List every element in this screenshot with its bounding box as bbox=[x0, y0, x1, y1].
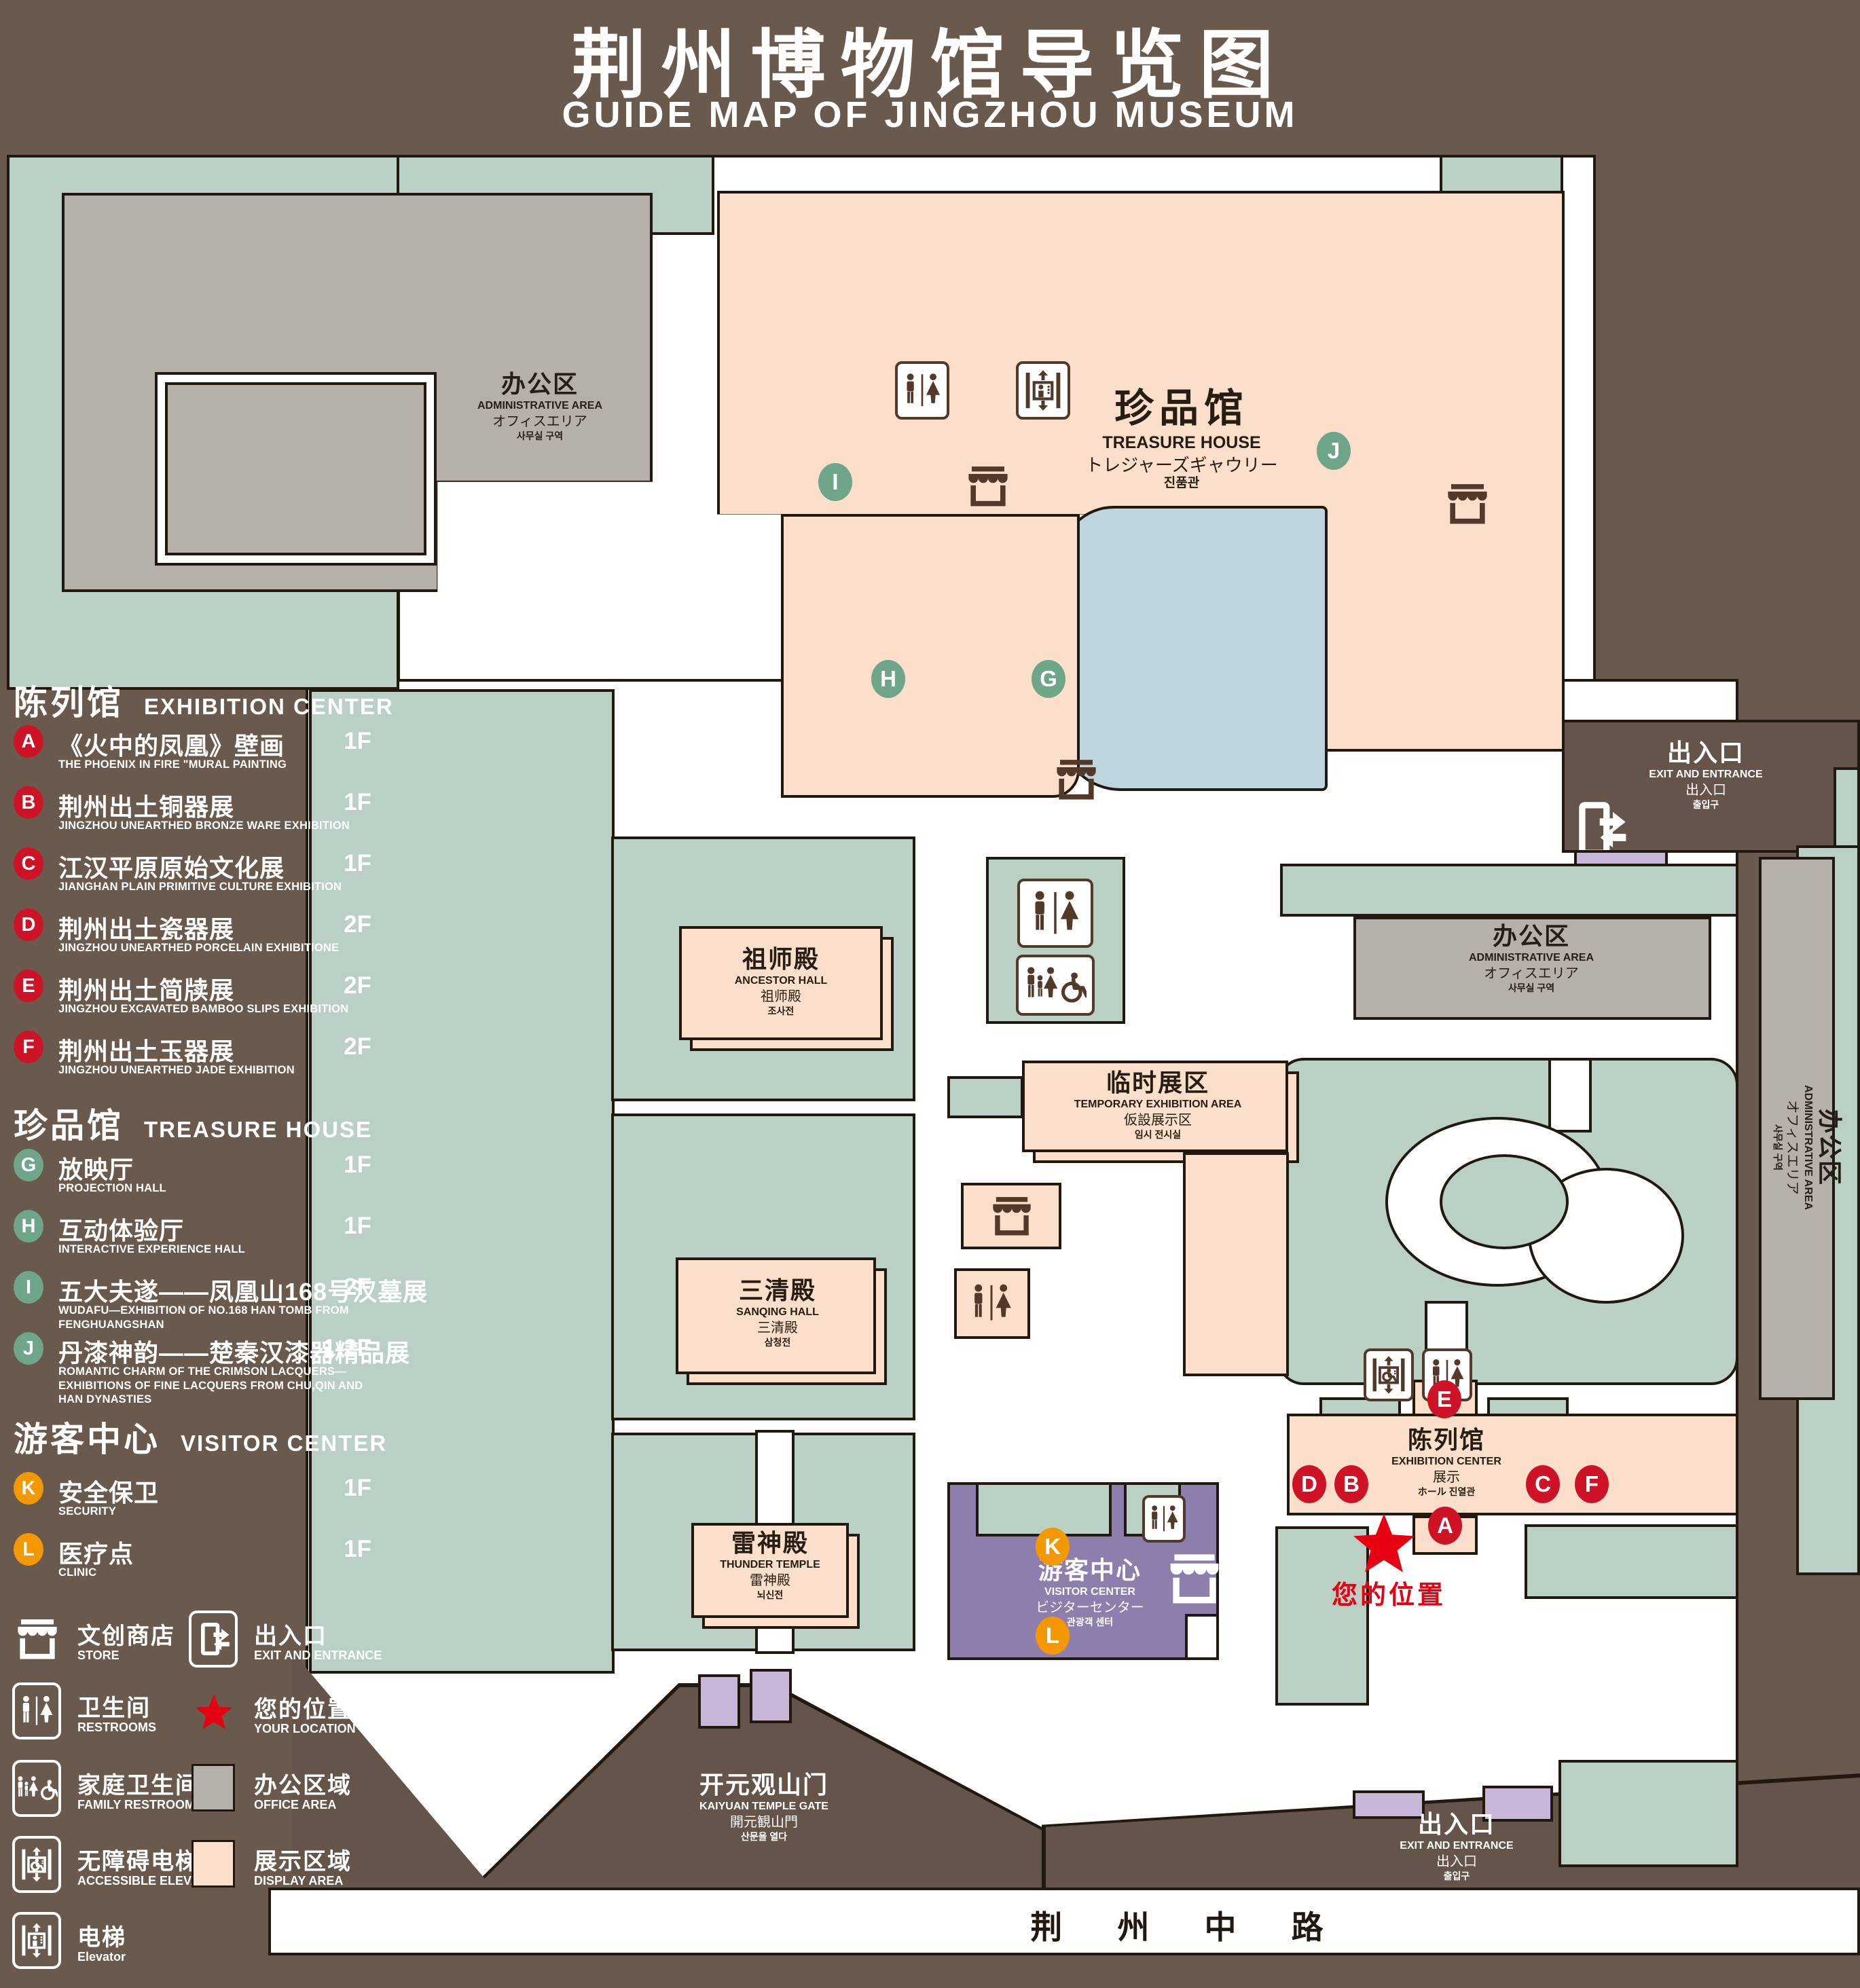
store-icon bbox=[966, 466, 1010, 507]
legend-item-subtitle: SECURITY bbox=[58, 1505, 384, 1519]
map-marker-B: B bbox=[1334, 1465, 1368, 1503]
family-restrooms-icon bbox=[12, 1760, 61, 1817]
legend-item-K: K安全保卫1FSECURITY bbox=[14, 1472, 371, 1532]
section-title-cn: 珍品馆 bbox=[14, 1107, 124, 1145]
marker-badge: G bbox=[14, 1149, 43, 1181]
green-strip-east bbox=[1834, 767, 1860, 848]
legend-item-D: D荆州出土瓷器展2FJINGZHOU UNEARTHED PORCELAIN E… bbox=[14, 908, 371, 968]
garden-loop-island bbox=[1440, 1154, 1569, 1249]
elevator-icon bbox=[12, 1912, 61, 1969]
legend-item-name: 医疗点 bbox=[58, 1534, 134, 1570]
map-marker-C: C bbox=[1526, 1465, 1560, 1503]
legend-item-subtitle: CLINIC bbox=[58, 1566, 384, 1580]
legend-symbol-office-swatch: 办公区域OFFICE AREA bbox=[189, 1760, 413, 1828]
store-icon bbox=[14, 1617, 61, 1661]
section-title-cn: 陈列馆 bbox=[14, 684, 124, 722]
legend-item-B: B荆州出土铜器展1FJINGZHOU UNEARTHED BRONZE WARE… bbox=[14, 786, 371, 846]
map-marker-D: D bbox=[1292, 1465, 1326, 1503]
legend-symbol-name: 无障碍电梯 bbox=[77, 1843, 200, 1876]
restrooms-icon bbox=[12, 1682, 61, 1739]
marker-badge: H bbox=[14, 1210, 43, 1242]
legend-symbol-subtitle: Elevator bbox=[77, 1950, 126, 1964]
store-icon bbox=[990, 1196, 1034, 1236]
legend-item-I: I五大夫遂——凤凰山168号汉墓展2FWUDAFU—EXHIBITION OF … bbox=[14, 1271, 371, 1331]
road-name-label: 荆 州 中 路 bbox=[951, 1901, 1426, 1948]
restrooms-icon bbox=[895, 361, 949, 420]
legend-item-floor: 1F bbox=[344, 1152, 371, 1179]
legend-item-subtitle: THE PHOENIX IN FIRE "MURAL PAINTING bbox=[58, 758, 384, 772]
map-marker-K: K bbox=[1036, 1528, 1070, 1566]
legend-panel: 陈列馆EXHIBITION CENTERA《火中的凤凰》壁画1FTHE PHOE… bbox=[0, 0, 516, 1988]
green-patch bbox=[947, 1076, 1023, 1118]
legend-item-floor: 1F bbox=[344, 728, 371, 755]
legend-item-A: A《火中的凤凰》壁画1FTHE PHOENIX IN FIRE "MURAL P… bbox=[14, 725, 371, 785]
restrooms-icon bbox=[970, 1282, 1013, 1324]
legend-item-E: E荆州出土简牍展2FJINGZHOU EXCAVATED BAMBOO SLIP… bbox=[14, 970, 371, 1029]
legend-item-subtitle: WUDAFU—EXHIBITION OF NO.168 HAN TOMB FRO… bbox=[58, 1304, 384, 1331]
legend-item-subtitle: INTERACTIVE EXPERIENCE HALL bbox=[58, 1242, 384, 1257]
legend-item-name: 互动体验厅 bbox=[58, 1211, 184, 1247]
legend-symbol-name: 办公区域 bbox=[254, 1767, 352, 1800]
accessible-elevator-icon bbox=[12, 1836, 61, 1893]
map-marker-H: H bbox=[871, 660, 905, 698]
map-marker-E: E bbox=[1427, 1380, 1461, 1418]
legend-item-name: 五大夫遂——凤凰山168号汉墓展 bbox=[58, 1272, 428, 1308]
legend-item-floor: 2F bbox=[344, 1274, 371, 1301]
legend-item-H: H互动体验厅1FINTERACTIVE EXPERIENCE HALL bbox=[14, 1210, 371, 1270]
marker-badge: A bbox=[14, 725, 43, 758]
legend-item-name: 江汉平原原始文化展 bbox=[58, 849, 285, 884]
legend-item-F: F荆州出土玉器展2FJINGZHOU UNEARTHED JADE EXHIBI… bbox=[14, 1031, 371, 1090]
marker-badge: K bbox=[14, 1472, 43, 1505]
temporary-exhibition-wing bbox=[1183, 1152, 1289, 1376]
map-marker-I: I bbox=[818, 463, 852, 501]
gate-building bbox=[1482, 1786, 1553, 1822]
legend-symbol-subtitle: OFFICE AREA bbox=[254, 1798, 336, 1812]
legend-symbol-location-icon: 您的位置YOUR LOCATION bbox=[189, 1684, 413, 1752]
pond bbox=[1059, 506, 1328, 791]
gate-building bbox=[698, 1674, 740, 1729]
sanqing-hall-building bbox=[676, 1257, 876, 1374]
admin-middle-building bbox=[1353, 917, 1711, 1020]
legend-section-header: 陈列馆EXHIBITION CENTER bbox=[14, 676, 394, 724]
legend-item-subtitle: JINGZHOU UNEARTHED JADE EXHIBITION bbox=[58, 1063, 384, 1078]
section-title-en: EXHIBITION CENTER bbox=[144, 694, 394, 719]
marker-badge: B bbox=[14, 786, 43, 819]
green-zone-south bbox=[1525, 1524, 1738, 1599]
map-marker-G: G bbox=[1032, 660, 1065, 698]
display-swatch bbox=[192, 1840, 235, 1888]
green-zone-southeast bbox=[1558, 1760, 1738, 1867]
marker-badge: J bbox=[14, 1332, 43, 1365]
marker-badge: C bbox=[14, 847, 43, 880]
legend-symbol-elevator-icon: 电梯Elevator bbox=[12, 1912, 236, 1980]
legend-symbol-subtitle: EXIT AND ENTRANCE bbox=[254, 1649, 382, 1663]
legend-item-subtitle: JINGZHOU EXCAVATED BAMBOO SLIPS EXHIBITI… bbox=[58, 1002, 384, 1016]
restrooms-icon bbox=[1017, 879, 1093, 948]
legend-item-subtitle: PROJECTION HALL bbox=[58, 1181, 384, 1196]
your-location-label: 您的位置 bbox=[1324, 1574, 1453, 1611]
legend-item-floor: 1-2F bbox=[323, 1335, 371, 1362]
section-title-cn: 游客中心 bbox=[14, 1420, 160, 1458]
ancestor-hall-building bbox=[679, 926, 883, 1040]
legend-symbol-name: 电梯 bbox=[77, 1919, 126, 1952]
elevator-icon bbox=[1016, 361, 1070, 420]
marker-badge: L bbox=[14, 1533, 43, 1566]
legend-item-J: J丹漆神韵——楚秦汉漆器精品展1-2FROMANTIC CHARM OF THE… bbox=[14, 1332, 371, 1392]
location-icon bbox=[190, 1691, 238, 1734]
legend-symbol-subtitle: STORE bbox=[77, 1649, 120, 1663]
legend-item-G: G放映厅1FPROJECTION HALL bbox=[14, 1149, 371, 1209]
legend-symbol-subtitle: RESTROOMS bbox=[77, 1720, 156, 1735]
marker-badge: F bbox=[14, 1031, 43, 1063]
legend-item-floor: 1F bbox=[344, 789, 371, 816]
legend-section-header: 游客中心VISITOR CENTER bbox=[14, 1412, 387, 1461]
gate-building bbox=[750, 1669, 792, 1723]
admin-east-building bbox=[1759, 857, 1835, 1400]
map-marker-F: F bbox=[1575, 1465, 1609, 1503]
legend-symbol-name: 展示区域 bbox=[254, 1843, 352, 1876]
legend-item-subtitle: JIANGHAN PLAIN PRIMITIVE CULTURE EXHIBIT… bbox=[58, 880, 384, 894]
family-restrooms-icon bbox=[1016, 955, 1095, 1016]
temporary-exhibition-building bbox=[1022, 1061, 1288, 1152]
legend-item-name: 荆州出土铜器展 bbox=[58, 788, 234, 823]
gate-building bbox=[1353, 1790, 1425, 1819]
legend-symbol-name: 家庭卫生间 bbox=[77, 1767, 200, 1800]
legend-item-floor: 1F bbox=[344, 850, 371, 877]
legend-item-C: C江汉平原原始文化展1FJIANGHAN PLAIN PRIMITIVE CUL… bbox=[14, 847, 371, 907]
legend-symbol-name: 您的位置 bbox=[254, 1691, 352, 1724]
section-title-en: VISITOR CENTER bbox=[181, 1431, 387, 1456]
legend-item-floor: 1F bbox=[344, 1213, 371, 1240]
legend-item-floor: 2F bbox=[344, 911, 371, 938]
legend-symbol-subtitle: YOUR LOCATION bbox=[254, 1722, 356, 1736]
legend-section-header: 珍品馆TREASURE HOUSE bbox=[14, 1099, 372, 1147]
legend-symbol-name: 卫生间 bbox=[77, 1689, 151, 1723]
store-icon bbox=[1445, 483, 1490, 524]
legend-item-L: L医疗点1FCLINIC bbox=[14, 1533, 371, 1593]
map-marker-J: J bbox=[1317, 432, 1351, 470]
exit-icon bbox=[189, 1610, 238, 1668]
map-marker-L: L bbox=[1036, 1617, 1070, 1655]
legend-item-name: 荆州出土简牍展 bbox=[58, 971, 234, 1006]
marker-badge: D bbox=[14, 908, 43, 941]
legend-symbol-subtitle: FAMILY RESTROOMS bbox=[77, 1798, 203, 1812]
legend-item-floor: 1F bbox=[344, 1475, 371, 1502]
legend-item-floor: 2F bbox=[344, 1033, 371, 1061]
map-marker-A: A bbox=[1428, 1507, 1462, 1545]
legend-item-floor: 2F bbox=[344, 972, 371, 999]
legend-item-subtitle: JINGZHOU UNEARTHED PORCELAIN EXHIBITIONE bbox=[58, 941, 384, 955]
restrooms-icon bbox=[1142, 1495, 1186, 1543]
store-icon bbox=[1167, 1553, 1222, 1604]
store-icon bbox=[1054, 759, 1099, 800]
thunder-temple-building bbox=[691, 1523, 849, 1618]
legend-symbol-exit-icon: 出入口EXIT AND ENTRANCE bbox=[189, 1610, 413, 1678]
legend-item-subtitle: ROMANTIC CHARM OF THE CRIMSON LACQUERS—E… bbox=[58, 1365, 384, 1407]
section-title-en: TREASURE HOUSE bbox=[144, 1117, 372, 1142]
legend-item-subtitle: JINGZHOU UNEARTHED BRONZE WARE EXHIBITIO… bbox=[58, 819, 384, 833]
office-swatch bbox=[192, 1764, 235, 1811]
legend-item-floor: 1F bbox=[344, 1536, 371, 1563]
accessible-elevator-icon bbox=[1364, 1348, 1414, 1401]
marker-badge: I bbox=[14, 1271, 43, 1304]
legend-symbol-name: 文创商店 bbox=[77, 1617, 175, 1651]
legend-item-name: 安全保卫 bbox=[58, 1473, 159, 1509]
visitor-center-notch-white bbox=[1185, 1614, 1219, 1660]
legend-item-name: 《火中的凤凰》壁画 bbox=[58, 726, 285, 762]
legend-symbol-name: 出入口 bbox=[254, 1617, 327, 1651]
legend-symbol-subtitle: DISPLAY AREA bbox=[254, 1874, 343, 1888]
green-band-middle bbox=[1280, 864, 1738, 917]
legend-item-name: 放映厅 bbox=[58, 1150, 134, 1185]
your-location-star-icon bbox=[1350, 1511, 1418, 1577]
visitor-center-notch bbox=[976, 1482, 1112, 1536]
legend-item-name: 荆州出土瓷器展 bbox=[58, 910, 234, 945]
garden-path bbox=[1548, 1058, 1592, 1133]
marker-badge: E bbox=[14, 970, 43, 1002]
legend-symbol-display-swatch: 展示区域DISPLAY AREA bbox=[189, 1836, 413, 1904]
legend-item-name: 荆州出土玉器展 bbox=[58, 1032, 234, 1067]
treasure-house-south-wing bbox=[781, 514, 1080, 798]
